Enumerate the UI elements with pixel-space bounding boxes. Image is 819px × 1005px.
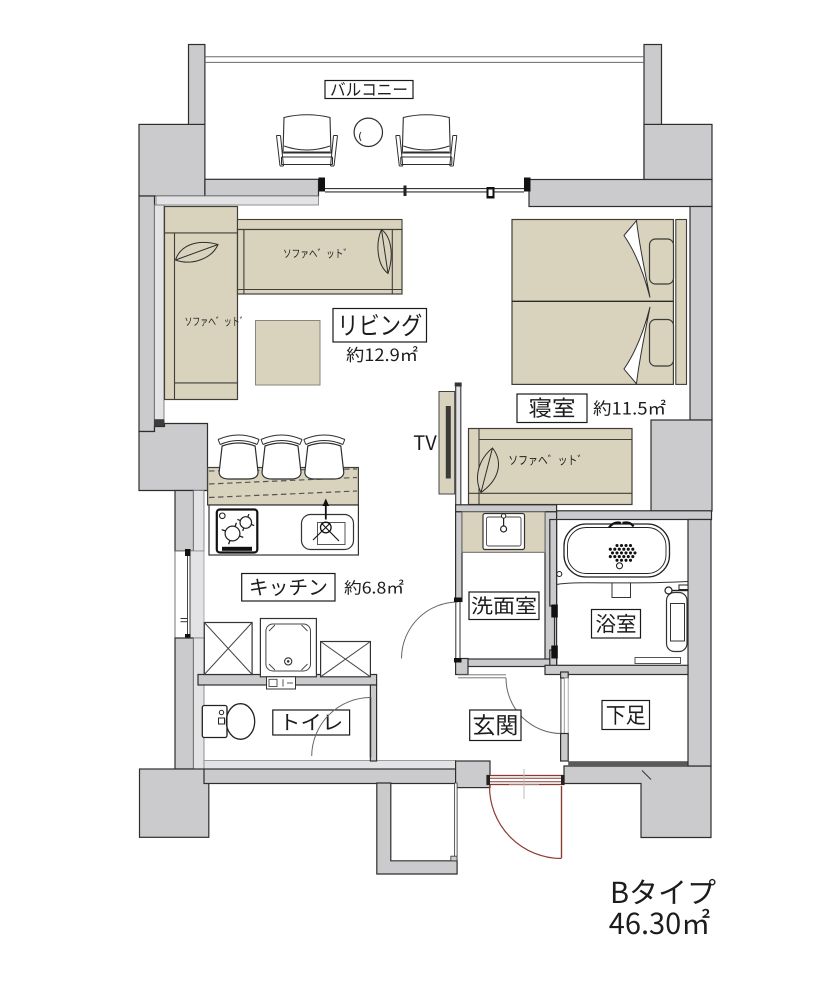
- svg-text:リビング: リビング: [337, 306, 422, 342]
- svg-text:浴室: 浴室: [596, 608, 637, 638]
- svg-text:約12.9㎡: 約12.9㎡: [346, 341, 418, 366]
- svg-text:ソファヘ゛ット゛: ソファヘ゛ット゛: [185, 314, 248, 330]
- svg-text:バルコニー: バルコニー: [330, 76, 408, 100]
- svg-text:玄関: 玄関: [472, 707, 518, 741]
- svg-text:TV: TV: [413, 427, 437, 456]
- svg-text:下足: 下足: [606, 698, 646, 730]
- svg-text:ソファヘ゛ット゛: ソファヘ゛ット゛: [508, 452, 587, 469]
- svg-text:キッチン: キッチン: [249, 571, 328, 600]
- svg-text:約11.5㎡: 約11.5㎡: [593, 395, 666, 420]
- svg-text:約6.8㎡: 約6.8㎡: [344, 575, 404, 599]
- svg-text:ソファヘ゛ット゛: ソファヘ゛ット゛: [283, 246, 352, 262]
- svg-text:46.30㎡: 46.30㎡: [609, 901, 710, 943]
- svg-text:寝室: 寝室: [529, 391, 576, 423]
- svg-text:洗面室: 洗面室: [471, 590, 537, 619]
